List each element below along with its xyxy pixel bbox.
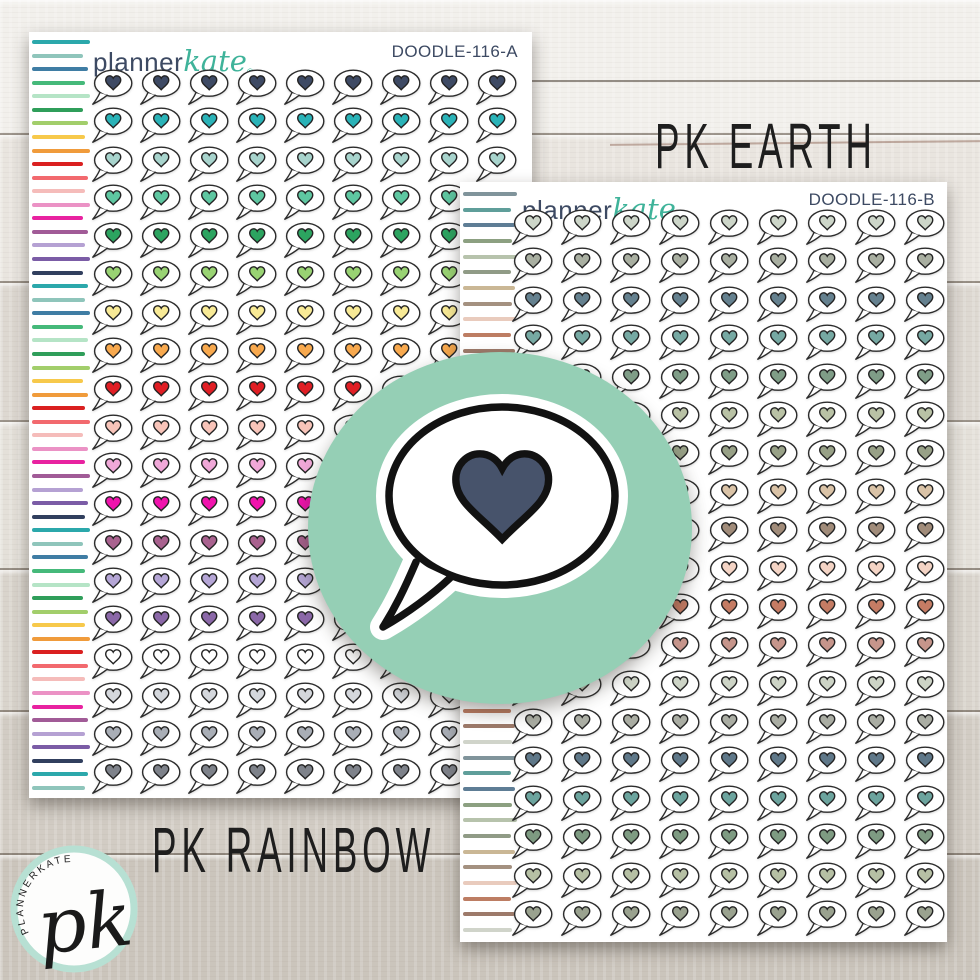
heart-bubble-sticker — [803, 362, 849, 399]
edge-stripe — [463, 771, 511, 775]
edge-stripe — [32, 677, 85, 681]
edge-stripe — [32, 772, 88, 776]
logo-initials: pk — [33, 873, 136, 971]
heart-bubble-sticker — [329, 183, 375, 220]
heart-bubble-sticker — [901, 861, 947, 898]
heart-bubble-sticker — [473, 68, 519, 105]
edge-stripe — [32, 474, 90, 478]
edge-stripe — [463, 740, 512, 744]
heart-bubble-sticker — [901, 899, 947, 936]
heart-bubble-sticker — [754, 362, 800, 399]
heart-bubble-sticker — [233, 719, 279, 756]
heart-bubble-sticker — [281, 719, 327, 756]
heart-bubble-sticker — [754, 323, 800, 360]
heart-bubble-sticker — [803, 630, 849, 667]
heart-bubble-sticker — [329, 298, 375, 335]
heart-bubble-sticker — [656, 707, 702, 744]
heart-bubble-sticker — [656, 208, 702, 245]
heart-bubble-sticker — [852, 822, 898, 859]
heart-bubble-sticker — [233, 183, 279, 220]
heart-bubble-sticker — [852, 515, 898, 552]
edge-stripe — [32, 325, 83, 329]
heart-bubble-sticker — [705, 899, 751, 936]
edge-stripe — [32, 81, 85, 85]
edge-stripe — [463, 302, 512, 306]
heart-bubble-sticker — [137, 642, 183, 679]
heart-bubble-sticker — [558, 822, 604, 859]
edge-stripe — [32, 338, 88, 342]
heart-bubble-sticker — [377, 259, 423, 296]
edge-stripe — [32, 243, 85, 247]
heart-bubble-sticker — [137, 681, 183, 718]
edge-stripe — [463, 333, 511, 337]
heart-bubble-sticker — [852, 477, 898, 514]
heart-bubble-sticker — [233, 374, 279, 411]
heart-bubble-sticker — [607, 208, 653, 245]
heart-bubble-sticker — [89, 145, 135, 182]
heart-bubble-sticker — [281, 681, 327, 718]
heart-bubble-sticker — [137, 719, 183, 756]
heart-bubble-sticker — [901, 669, 947, 706]
heart-bubble-sticker — [754, 592, 800, 629]
heart-bubble-sticker — [852, 362, 898, 399]
heart-bubble-sticker — [754, 707, 800, 744]
heart-bubble-sticker — [656, 285, 702, 322]
heart-bubble-sticker — [329, 757, 375, 794]
heart-bubble-sticker — [852, 899, 898, 936]
edge-stripe — [32, 108, 83, 112]
heart-bubble-sticker — [705, 861, 751, 898]
edge-stripe — [463, 192, 517, 196]
preview-badge-circle — [308, 352, 692, 704]
caption-pk-earth: PK EARTH — [655, 108, 877, 184]
heart-bubble-sticker — [89, 451, 135, 488]
heart-bubble-sticker — [233, 68, 279, 105]
heart-bubble-sticker — [852, 630, 898, 667]
edge-stripe — [463, 865, 512, 869]
heart-bubble-sticker — [329, 145, 375, 182]
heart-bubble-sticker — [89, 413, 135, 450]
edge-stripe — [32, 596, 83, 600]
heart-bubble-sticker — [803, 554, 849, 591]
edge-stripe — [32, 637, 90, 641]
heart-bubble-sticker — [754, 861, 800, 898]
edge-stripe — [32, 379, 83, 383]
edge-stripe — [32, 718, 88, 722]
heart-bubble-sticker — [803, 285, 849, 322]
heart-bubble-sticker — [89, 336, 135, 373]
heart-bubble-sticker — [901, 822, 947, 859]
edge-stripe — [32, 366, 90, 370]
edge-stripe — [32, 555, 88, 559]
heart-bubble-sticker — [852, 285, 898, 322]
edge-stripe — [32, 420, 90, 424]
heart-bubble-sticker — [137, 145, 183, 182]
edge-stripe — [463, 834, 511, 838]
heart-bubble-sticker — [89, 719, 135, 756]
heart-bubble-sticker — [558, 899, 604, 936]
heart-bubble-sticker — [607, 246, 653, 283]
edge-stripe — [463, 803, 512, 807]
edge-stripe — [463, 897, 511, 901]
heart-bubble-sticker — [185, 374, 231, 411]
caption-pk-rainbow: PK RAINBOW — [152, 812, 435, 888]
heart-bubble-sticker — [281, 183, 327, 220]
heart-bubble-sticker — [185, 566, 231, 603]
heart-bubble-sticker — [509, 784, 555, 821]
edge-stripe — [463, 208, 511, 212]
heart-bubble-sticker — [377, 221, 423, 258]
edge-stripe — [32, 352, 85, 356]
heart-bubble-sticker — [607, 707, 653, 744]
heart-bubble-sticker — [803, 246, 849, 283]
heart-bubble-sticker — [137, 528, 183, 565]
heart-bubble-sticker — [89, 68, 135, 105]
heart-bubble-sticker — [705, 784, 751, 821]
heart-bubble-sticker — [281, 642, 327, 679]
heart-bubble-sticker — [705, 592, 751, 629]
heart-bubble-sticker — [803, 477, 849, 514]
heart-bubble-sticker — [705, 438, 751, 475]
heart-bubble-sticker — [509, 208, 555, 245]
edge-stripe — [32, 705, 83, 709]
heart-bubble-sticker — [509, 899, 555, 936]
heart-bubble-sticker — [137, 221, 183, 258]
heart-bubble-sticker — [803, 745, 849, 782]
edge-stripe — [32, 610, 88, 614]
heart-bubble-sticker — [185, 106, 231, 143]
heart-bubble-sticker — [509, 285, 555, 322]
sheet-code: DOODLE-116-A — [392, 42, 518, 62]
heart-bubble-sticker — [509, 246, 555, 283]
heart-bubble-sticker — [377, 68, 423, 105]
edge-stripe — [32, 54, 83, 58]
heart-bubble-sticker — [185, 68, 231, 105]
preview-heart-bubble-sticker — [350, 394, 650, 664]
edge-stripe — [32, 488, 83, 492]
heart-bubble-sticker — [509, 707, 555, 744]
heart-bubble-sticker — [185, 413, 231, 450]
heart-bubble-sticker — [233, 451, 279, 488]
heart-bubble-sticker — [754, 899, 800, 936]
heart-bubble-sticker — [803, 323, 849, 360]
heart-bubble-sticker — [901, 554, 947, 591]
product-photo: PK EARTH PK RAINBOW plannerkate® DOODLE-… — [0, 0, 980, 980]
edge-stripe — [32, 650, 83, 654]
heart-bubble-sticker — [656, 745, 702, 782]
heart-bubble-sticker — [754, 246, 800, 283]
heart-bubble-sticker — [137, 604, 183, 641]
heart-bubble-sticker — [425, 145, 471, 182]
heart-bubble-sticker — [656, 400, 702, 437]
heart-bubble-sticker — [137, 259, 183, 296]
heart-bubble-sticker — [509, 745, 555, 782]
heart-bubble-sticker — [754, 630, 800, 667]
heart-bubble-sticker — [185, 719, 231, 756]
heart-bubble-sticker — [754, 208, 800, 245]
heart-bubble-sticker — [607, 323, 653, 360]
heart-bubble-sticker — [89, 604, 135, 641]
heart-bubble-sticker — [656, 784, 702, 821]
heart-bubble-sticker — [607, 861, 653, 898]
edge-stripe — [32, 162, 83, 166]
heart-bubble-sticker — [233, 566, 279, 603]
heart-bubble-sticker — [473, 106, 519, 143]
heart-bubble-sticker — [185, 528, 231, 565]
heart-bubble-sticker — [281, 259, 327, 296]
heart-bubble-sticker — [137, 374, 183, 411]
heart-bubble-sticker — [705, 745, 751, 782]
heart-bubble-sticker — [377, 298, 423, 335]
edge-stripe — [32, 284, 88, 288]
edge-stripe — [32, 257, 90, 261]
edge-stripe — [32, 501, 88, 505]
heart-bubble-sticker — [705, 822, 751, 859]
heart-bubble-sticker — [137, 757, 183, 794]
heart-bubble-sticker — [901, 285, 947, 322]
heart-bubble-sticker — [233, 221, 279, 258]
heart-bubble-sticker — [233, 681, 279, 718]
heart-bubble-sticker — [509, 822, 555, 859]
heart-bubble-sticker — [901, 362, 947, 399]
heart-bubble-sticker — [607, 745, 653, 782]
heart-bubble-sticker — [754, 285, 800, 322]
heart-bubble-sticker — [607, 899, 653, 936]
heart-bubble-sticker — [656, 899, 702, 936]
heart-bubble-sticker — [233, 145, 279, 182]
heart-bubble-sticker — [89, 757, 135, 794]
heart-bubble-sticker — [185, 259, 231, 296]
heart-bubble-sticker — [558, 745, 604, 782]
heart-bubble-sticker — [233, 298, 279, 335]
heart-bubble-sticker — [803, 861, 849, 898]
heart-bubble-sticker — [705, 707, 751, 744]
heart-bubble-sticker — [705, 285, 751, 322]
heart-bubble-sticker — [185, 604, 231, 641]
edge-stripe — [32, 203, 90, 207]
heart-bubble-sticker — [852, 554, 898, 591]
heart-bubble-sticker — [754, 784, 800, 821]
heart-bubble-sticker — [705, 208, 751, 245]
edge-stripe — [32, 94, 90, 98]
heart-bubble-sticker — [89, 106, 135, 143]
heart-bubble-sticker — [233, 528, 279, 565]
edge-stripe — [463, 912, 515, 916]
edge-stripe — [32, 786, 85, 790]
edge-stripe — [32, 623, 85, 627]
heart-bubble-sticker — [852, 246, 898, 283]
heart-bubble-sticker — [233, 259, 279, 296]
heart-bubble-sticker — [558, 707, 604, 744]
heart-bubble-sticker — [329, 106, 375, 143]
heart-bubble-sticker — [329, 719, 375, 756]
heart-bubble-sticker — [281, 298, 327, 335]
heart-bubble-sticker — [425, 68, 471, 105]
heart-bubble-sticker — [377, 183, 423, 220]
edge-stripe — [32, 569, 85, 573]
heart-bubble-sticker — [754, 515, 800, 552]
heart-bubble-sticker — [852, 400, 898, 437]
heart-bubble-sticker — [137, 413, 183, 450]
heart-bubble-sticker — [803, 438, 849, 475]
heart-bubble-sticker — [607, 784, 653, 821]
heart-bubble-sticker — [558, 246, 604, 283]
heart-bubble-sticker — [754, 400, 800, 437]
heart-bubble-sticker — [852, 438, 898, 475]
heart-bubble-sticker — [705, 630, 751, 667]
heart-bubble-sticker — [377, 106, 423, 143]
edge-stripe — [463, 928, 512, 932]
heart-bubble-sticker — [656, 669, 702, 706]
heart-bubble-sticker — [754, 438, 800, 475]
heart-bubble-sticker — [901, 323, 947, 360]
edge-stripe — [463, 286, 515, 290]
heart-bubble-sticker — [901, 707, 947, 744]
heart-bubble-sticker — [558, 208, 604, 245]
edge-stripe — [32, 732, 85, 736]
heart-bubble-sticker — [705, 362, 751, 399]
heart-bubble-sticker — [656, 323, 702, 360]
heart-bubble-sticker — [852, 669, 898, 706]
edge-stripe — [32, 515, 85, 519]
heart-bubble-sticker — [803, 899, 849, 936]
heart-bubble-sticker — [377, 757, 423, 794]
heart-bubble-sticker — [281, 221, 327, 258]
heart-bubble-sticker — [803, 669, 849, 706]
heart-bubble-sticker — [852, 745, 898, 782]
heart-bubble-sticker — [137, 68, 183, 105]
edge-stripe — [32, 230, 88, 234]
heart-bubble-sticker — [281, 68, 327, 105]
heart-bubble-sticker — [425, 106, 471, 143]
edge-stripe — [32, 298, 85, 302]
heart-bubble-sticker — [754, 745, 800, 782]
heart-bubble-sticker — [558, 861, 604, 898]
heart-bubble-sticker — [281, 145, 327, 182]
heart-bubble-sticker — [901, 515, 947, 552]
heart-bubble-sticker — [509, 861, 555, 898]
heart-bubble-sticker — [185, 642, 231, 679]
edge-stripe — [463, 724, 515, 728]
heart-bubble-sticker — [89, 528, 135, 565]
heart-bubble-sticker — [803, 822, 849, 859]
heart-bubble-sticker — [901, 784, 947, 821]
heart-bubble-sticker — [558, 323, 604, 360]
heart-bubble-sticker — [852, 861, 898, 898]
planner-kate-round-logo: PLANNERKATE pk — [2, 838, 152, 980]
heart-bubble-sticker — [754, 669, 800, 706]
edge-stripe — [32, 583, 90, 587]
edge-stripe — [32, 745, 90, 749]
heart-bubble-sticker — [137, 183, 183, 220]
heart-bubble-sticker — [89, 642, 135, 679]
edge-stripe — [32, 406, 85, 410]
heart-bubble-sticker — [754, 477, 800, 514]
heart-bubble-sticker — [89, 221, 135, 258]
heart-bubble-sticker — [754, 822, 800, 859]
heart-bubble-sticker — [185, 183, 231, 220]
edge-stripe — [32, 135, 85, 139]
heart-bubble-sticker — [656, 246, 702, 283]
edge-stripe — [32, 759, 83, 763]
heart-bubble-sticker — [329, 681, 375, 718]
heart-bubble-sticker — [852, 707, 898, 744]
heart-bubble-sticker — [852, 323, 898, 360]
edge-stripe — [32, 528, 90, 532]
heart-bubble-sticker — [852, 592, 898, 629]
edge-stripe — [463, 709, 511, 713]
heart-bubble-sticker — [233, 106, 279, 143]
heart-bubble-sticker — [233, 642, 279, 679]
heart-bubble-sticker — [705, 669, 751, 706]
heart-bubble-sticker — [89, 681, 135, 718]
heart-bubble-sticker — [705, 515, 751, 552]
heart-bubble-sticker — [803, 592, 849, 629]
heart-bubble-sticker — [89, 566, 135, 603]
heart-bubble-sticker — [473, 145, 519, 182]
heart-bubble-sticker — [803, 784, 849, 821]
edge-stripe — [32, 691, 90, 695]
heart-bubble-sticker — [137, 566, 183, 603]
heart-bubble-sticker — [607, 285, 653, 322]
edge-stripe — [463, 223, 515, 227]
edge-stripe — [32, 216, 83, 220]
heart-bubble-sticker — [281, 106, 327, 143]
heart-bubble-sticker — [185, 757, 231, 794]
heart-bubble-sticker — [185, 145, 231, 182]
heart-bubble-sticker — [901, 208, 947, 245]
edge-stripe — [32, 176, 88, 180]
heart-bubble-sticker — [656, 362, 702, 399]
edge-stripe — [32, 433, 83, 437]
heart-bubble-sticker — [901, 400, 947, 437]
heart-bubble-sticker — [803, 400, 849, 437]
edge-stripe — [32, 121, 88, 125]
edge-stripe — [32, 189, 85, 193]
heart-bubble-sticker — [185, 298, 231, 335]
edge-stripe — [32, 393, 88, 397]
heart-bubble-sticker — [656, 861, 702, 898]
heart-bubble-sticker — [705, 477, 751, 514]
heart-bubble-sticker — [233, 489, 279, 526]
heart-bubble-sticker — [377, 719, 423, 756]
edge-stripe — [32, 149, 90, 153]
heart-bubble-sticker — [607, 822, 653, 859]
heart-bubble-sticker — [233, 413, 279, 450]
heart-bubble-sticker — [901, 477, 947, 514]
heart-bubble-sticker — [233, 604, 279, 641]
heart-bubble-sticker — [89, 259, 135, 296]
heart-bubble-sticker — [137, 106, 183, 143]
heart-bubble-sticker — [185, 681, 231, 718]
heart-bubble-sticker — [185, 336, 231, 373]
heart-bubble-sticker — [901, 246, 947, 283]
edge-stripe — [32, 40, 90, 44]
heart-bubble-sticker — [377, 336, 423, 373]
edge-stripe — [463, 239, 512, 243]
heart-bubble-sticker — [705, 400, 751, 437]
heart-bubble-sticker — [705, 323, 751, 360]
heart-bubble-sticker — [705, 554, 751, 591]
heart-bubble-sticker — [377, 145, 423, 182]
edge-stripe — [32, 542, 83, 546]
edge-stripe — [32, 447, 88, 451]
heart-bubble-sticker — [89, 183, 135, 220]
edge-stripe — [32, 67, 88, 71]
heart-bubble-sticker — [852, 208, 898, 245]
heart-bubble-sticker — [137, 336, 183, 373]
heart-bubble-sticker — [901, 592, 947, 629]
